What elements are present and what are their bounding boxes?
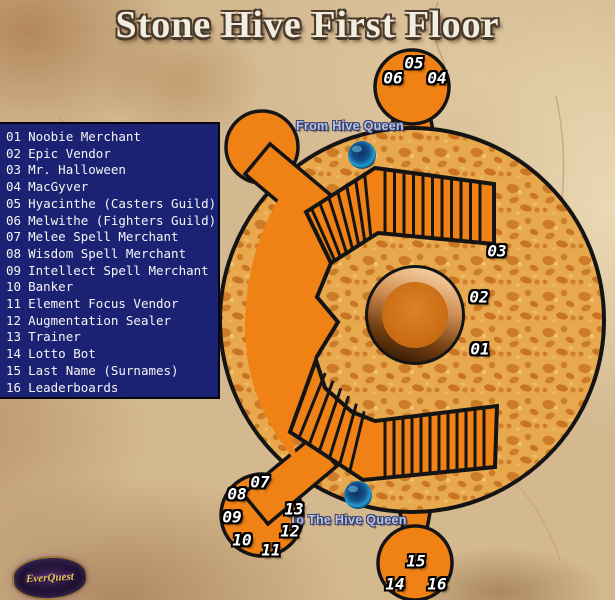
to-hive-queen-label: To The Hive Queen bbox=[289, 513, 406, 527]
legend-item: 09Intellect Spell Merchant bbox=[6, 263, 218, 280]
legend-item: 01Noobie Merchant bbox=[6, 129, 218, 146]
badge-05: 05 bbox=[404, 54, 423, 73]
central-platform bbox=[365, 265, 465, 365]
everquest-logo-text: EverQuest bbox=[26, 571, 74, 585]
legend-item: 10Banker bbox=[6, 279, 218, 296]
badge-01: 01 bbox=[470, 340, 489, 359]
badge-02: 02 bbox=[469, 288, 488, 307]
legend-item: 07Melee Spell Merchant bbox=[6, 229, 218, 246]
badge-10: 10 bbox=[232, 531, 251, 550]
stone-hive-map-image: Stone Hive First Floor 01Noobie Merchant… bbox=[0, 0, 615, 600]
legend-item: 06Melwithe (Fighters Guild) bbox=[6, 213, 218, 230]
page-title: Stone Hive First Floor bbox=[0, 3, 615, 47]
legend-item: 15Last Name (Surnames) bbox=[6, 363, 218, 380]
badge-11: 11 bbox=[261, 541, 280, 560]
legend-panel: 01Noobie Merchant 02Epic Vendor 03Mr. Ha… bbox=[0, 122, 220, 399]
legend-item: 16Leaderboards bbox=[6, 380, 218, 397]
badge-03: 03 bbox=[487, 242, 506, 261]
badge-09: 09 bbox=[222, 508, 241, 527]
legend-item: 13Trainer bbox=[6, 329, 218, 346]
badge-15: 15 bbox=[406, 552, 425, 571]
to-hive-queen-portal bbox=[344, 481, 372, 509]
legend-item: 12Augmentation Sealer bbox=[6, 313, 218, 330]
legend-item: 02Epic Vendor bbox=[6, 146, 218, 163]
badge-07: 07 bbox=[250, 473, 269, 492]
from-hive-queen-portal bbox=[348, 141, 376, 169]
badge-13: 13 bbox=[284, 500, 303, 519]
legend-item: 11Element Focus Vendor bbox=[6, 296, 218, 313]
from-hive-queen-label: From Hive Queen bbox=[296, 119, 404, 133]
legend-item: 08Wisdom Spell Merchant bbox=[6, 246, 218, 263]
badge-08: 08 bbox=[227, 485, 246, 504]
legend-item: 05Hyacinthe (Casters Guild) bbox=[6, 196, 218, 213]
legend-item: 03Mr. Halloween bbox=[6, 162, 218, 179]
legend-item: 14Lotto Bot bbox=[6, 346, 218, 363]
badge-12: 12 bbox=[280, 522, 299, 541]
badge-14: 14 bbox=[385, 575, 404, 594]
badge-04: 04 bbox=[427, 69, 446, 88]
legend-item: 04MacGyver bbox=[6, 179, 218, 196]
badge-06: 06 bbox=[383, 69, 402, 88]
badge-16: 16 bbox=[427, 575, 446, 594]
